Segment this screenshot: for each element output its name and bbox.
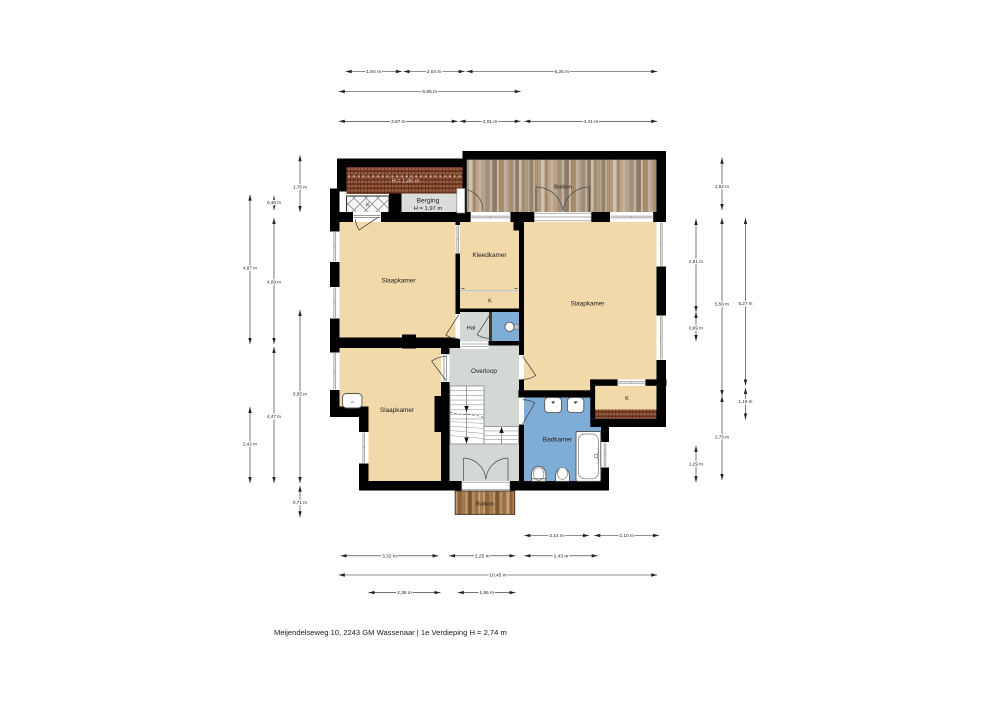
svg-text:K: K xyxy=(488,299,492,305)
svg-text:0,71 m: 0,71 m xyxy=(293,500,307,505)
svg-text:2,91 m: 2,91 m xyxy=(689,259,703,264)
svg-text:1,62 m: 1,62 m xyxy=(715,184,729,189)
svg-text:0,99 m: 0,99 m xyxy=(689,326,703,331)
svg-text:2,25 m: 2,25 m xyxy=(475,553,490,559)
svg-text:Badkamer: Badkamer xyxy=(543,437,573,444)
svg-text:Kleedkamer: Kleedkamer xyxy=(472,252,507,259)
svg-text:2,04 m: 2,04 m xyxy=(427,69,442,75)
svg-text:1,76 m: 1,76 m xyxy=(293,184,307,189)
svg-text:0,46 m: 0,46 m xyxy=(267,200,281,205)
svg-text:3,32 m: 3,32 m xyxy=(382,553,397,559)
svg-text:4,41 m: 4,41 m xyxy=(583,119,598,125)
svg-text:4,87 m: 4,87 m xyxy=(243,266,257,271)
svg-text:Balkon: Balkon xyxy=(554,185,572,191)
svg-text:K: K xyxy=(366,203,370,209)
svg-text:1,84 m: 1,84 m xyxy=(366,69,381,75)
svg-text:2,75 m: 2,75 m xyxy=(715,434,729,439)
svg-text:Hal: Hal xyxy=(467,326,476,332)
svg-text:5,95 m: 5,95 m xyxy=(422,89,437,95)
svg-text:5,55 m: 5,55 m xyxy=(293,392,307,397)
svg-text:Berging: Berging xyxy=(417,197,440,204)
svg-text:2,36 m: 2,36 m xyxy=(397,590,412,596)
svg-text:3,87 m: 3,87 m xyxy=(391,119,406,125)
svg-text:4,09 m: 4,09 m xyxy=(267,280,281,285)
svg-text:H = 1,46 m: H = 1,46 m xyxy=(392,179,420,185)
svg-text:1,95 m: 1,95 m xyxy=(479,590,494,596)
svg-text:H = 1,97 m: H = 1,97 m xyxy=(414,206,443,212)
svg-text:Balkon: Balkon xyxy=(476,502,494,508)
svg-text:2,01 m: 2,01 m xyxy=(483,119,498,125)
svg-text:2,42 m: 2,42 m xyxy=(243,441,257,446)
svg-text:2,43 m: 2,43 m xyxy=(554,553,569,559)
svg-text:Slaapkamer: Slaapkamer xyxy=(380,407,415,414)
svg-text:6,25 m: 6,25 m xyxy=(555,69,570,75)
svg-text:Slaapkamer: Slaapkamer xyxy=(570,301,605,308)
svg-text:Slaapkamer: Slaapkamer xyxy=(381,278,416,285)
svg-text:1,19 m: 1,19 m xyxy=(738,399,752,404)
svg-text:5,27 m: 5,27 m xyxy=(738,301,752,306)
svg-text:2,14 m: 2,14 m xyxy=(549,533,564,539)
svg-text:4,47 m: 4,47 m xyxy=(267,414,281,419)
svg-text:K: K xyxy=(625,396,629,402)
svg-text:2,10 m: 2,10 m xyxy=(619,533,634,539)
svg-text:1,29 m: 1,29 m xyxy=(689,462,703,467)
svg-text:10,45 m: 10,45 m xyxy=(489,573,506,579)
svg-text:Overloop: Overloop xyxy=(471,368,497,375)
svg-text:5,56 m: 5,56 m xyxy=(715,302,729,307)
